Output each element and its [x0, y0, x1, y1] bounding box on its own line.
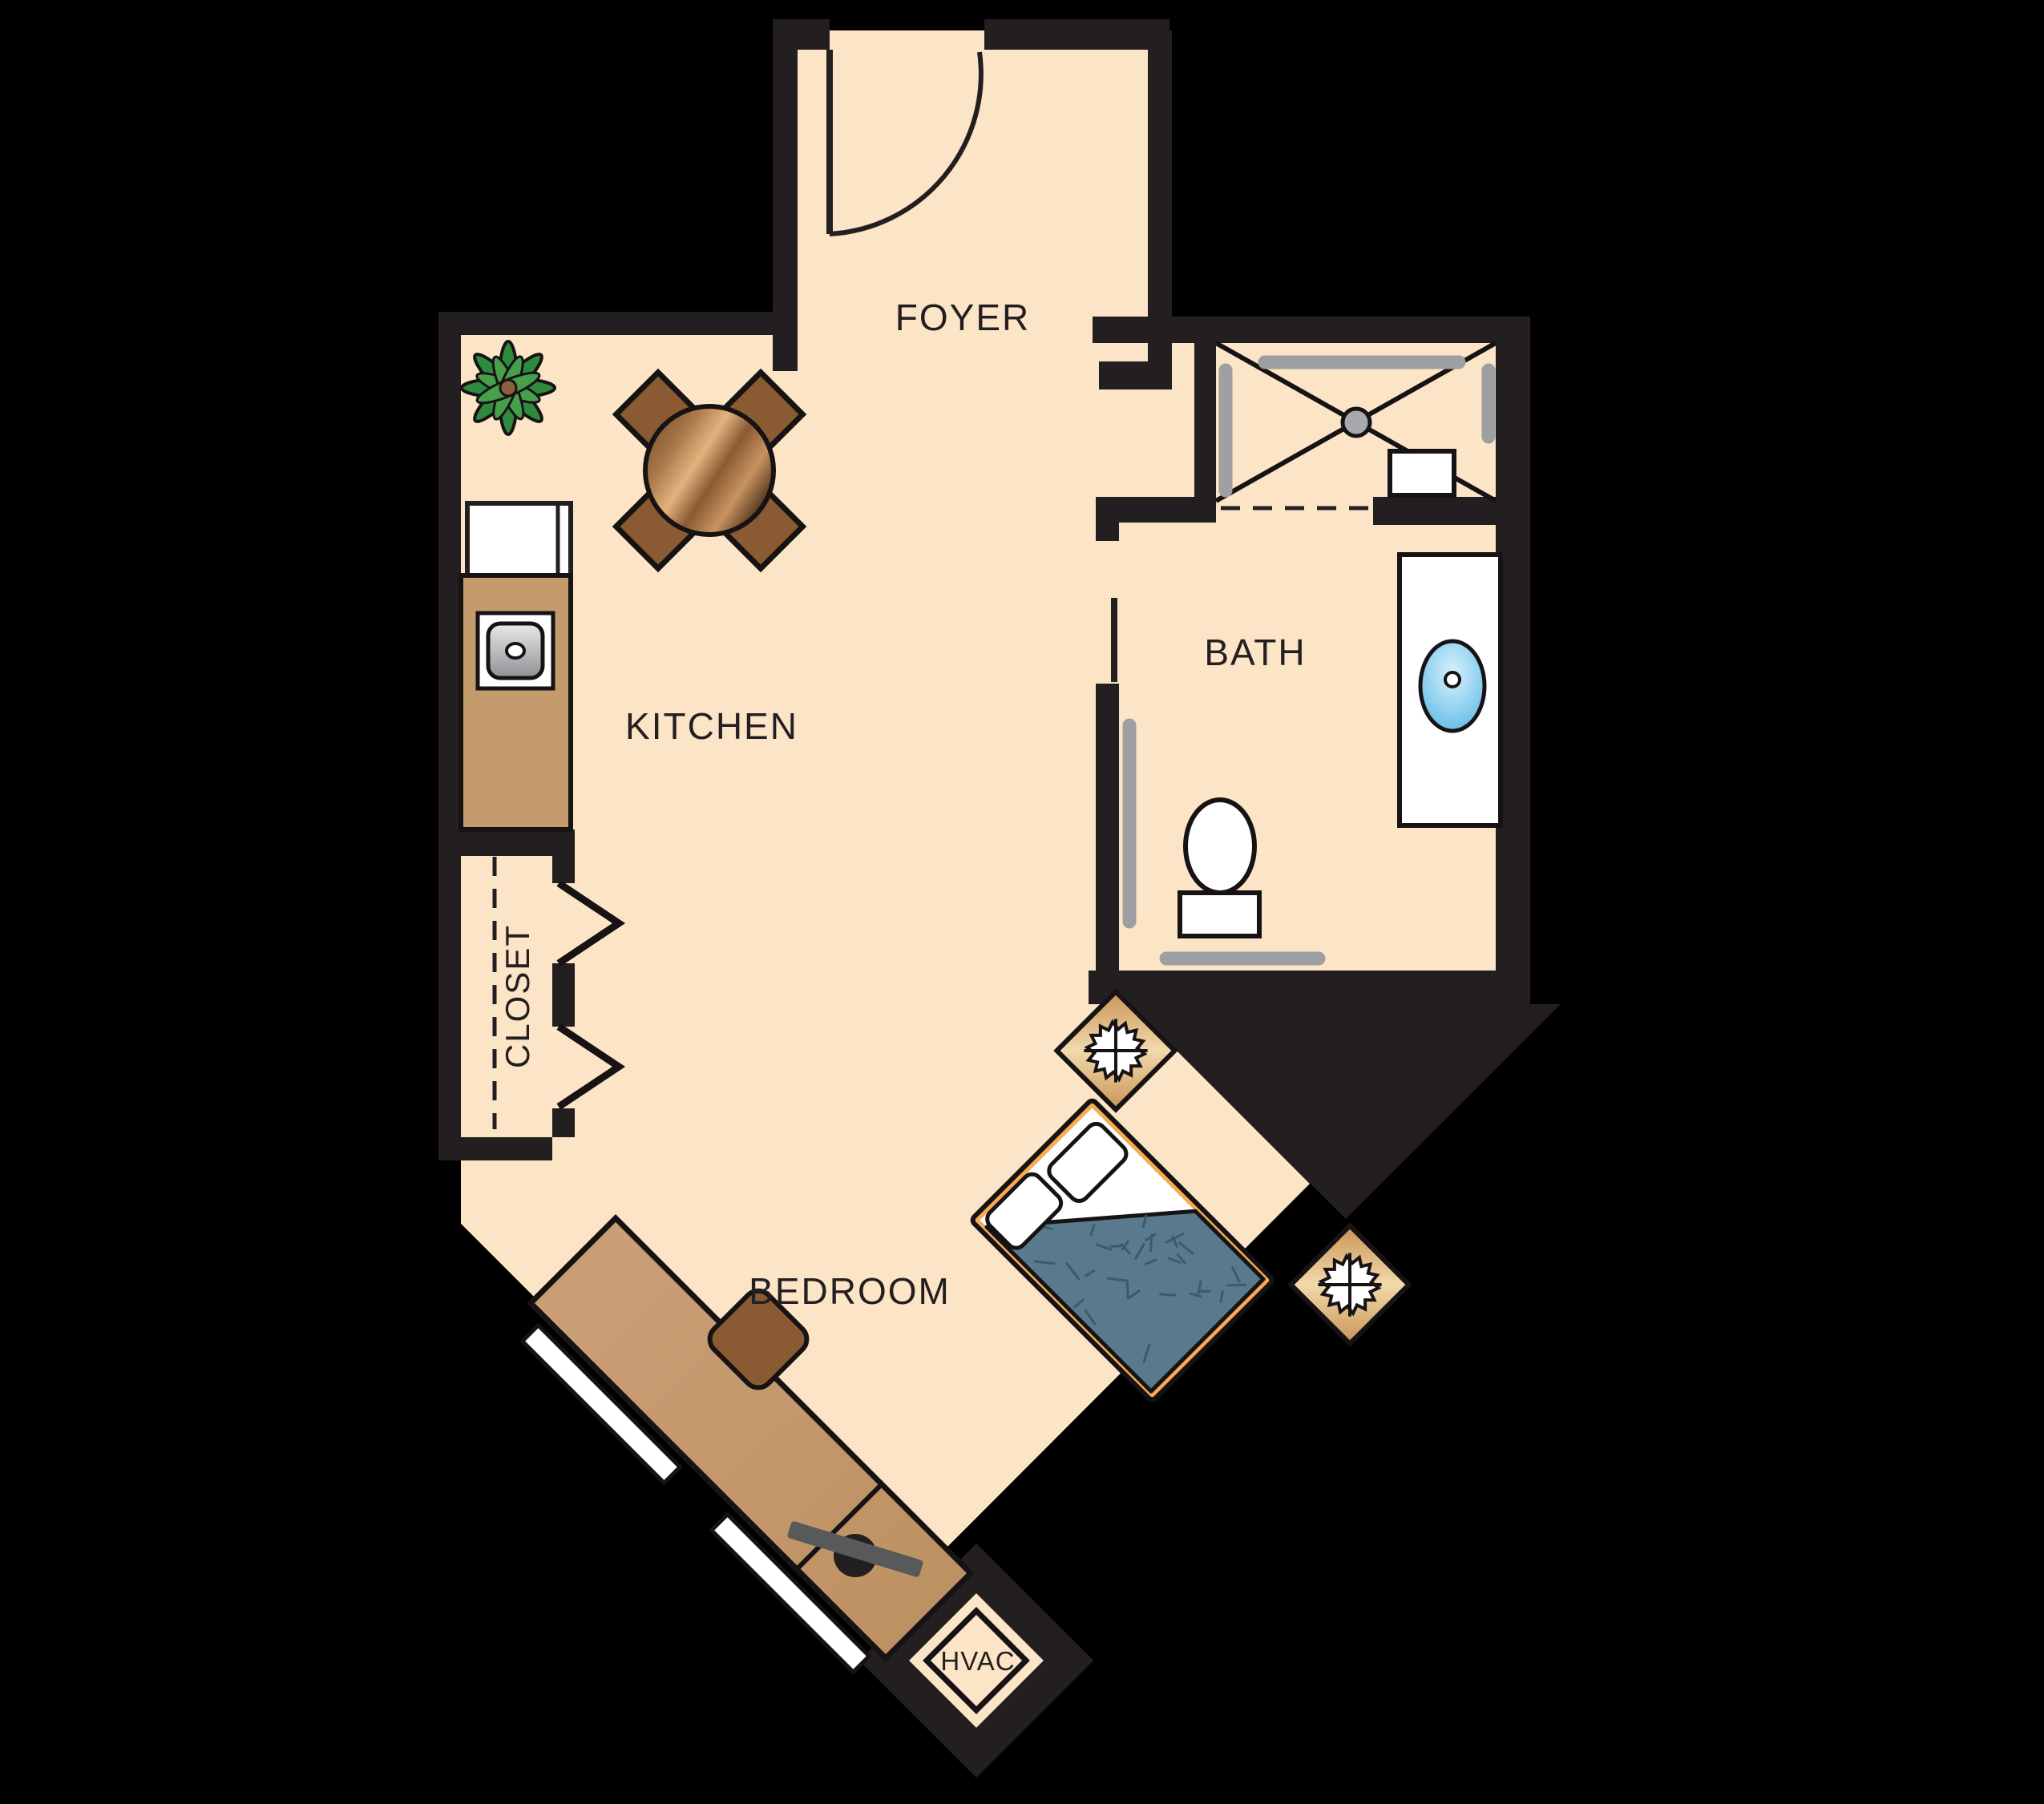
shower-southeast-stub [1373, 497, 1501, 525]
foyer-top-wall-right [984, 19, 1169, 50]
closet-stub-top [552, 856, 575, 883]
kitchen-top-wall [438, 312, 798, 335]
plant-center [500, 380, 516, 396]
dining-table-icon [645, 406, 774, 535]
vanity-icon [1400, 555, 1501, 825]
floor-plan: HVAC [0, 0, 2044, 1804]
toilet-tank [1180, 893, 1259, 936]
bath-west-wall [1096, 684, 1119, 971]
vanity-drain [1445, 672, 1460, 687]
bath-north-wall [1093, 317, 1530, 343]
bath-south-wall [1089, 971, 1530, 1004]
closet-label: CLOSET [499, 924, 536, 1068]
closet-stub-bottom [552, 1108, 575, 1137]
west-wall [438, 312, 461, 1160]
foyer-right-wall [1148, 30, 1172, 361]
shower-seat-icon [1390, 451, 1454, 495]
foyer-right-wall-stub [1099, 361, 1172, 389]
refrigerator-icon [467, 503, 571, 575]
bedroom-label: BEDROOM [749, 1270, 951, 1312]
plant-icon [462, 341, 555, 434]
bath-label: BATH [1204, 632, 1306, 673]
toilet-bowl [1186, 800, 1254, 893]
shower-west-wall [1194, 317, 1216, 523]
closet-top-wall [438, 829, 575, 856]
bath-entry-wall-v [1096, 497, 1119, 541]
hvac-label: HVAC [940, 1646, 1015, 1676]
sink-drain [507, 644, 524, 658]
toilet-icon [1180, 800, 1259, 936]
closet-stub-mid [552, 963, 575, 1027]
shower-drain-icon [1343, 409, 1370, 436]
floor-plan-canvas: HVAC [0, 0, 2044, 1804]
foyer-label: FOYER [895, 297, 1030, 338]
kitchen-label: KITCHEN [625, 705, 798, 747]
closet-bottom-wall [438, 1137, 552, 1160]
